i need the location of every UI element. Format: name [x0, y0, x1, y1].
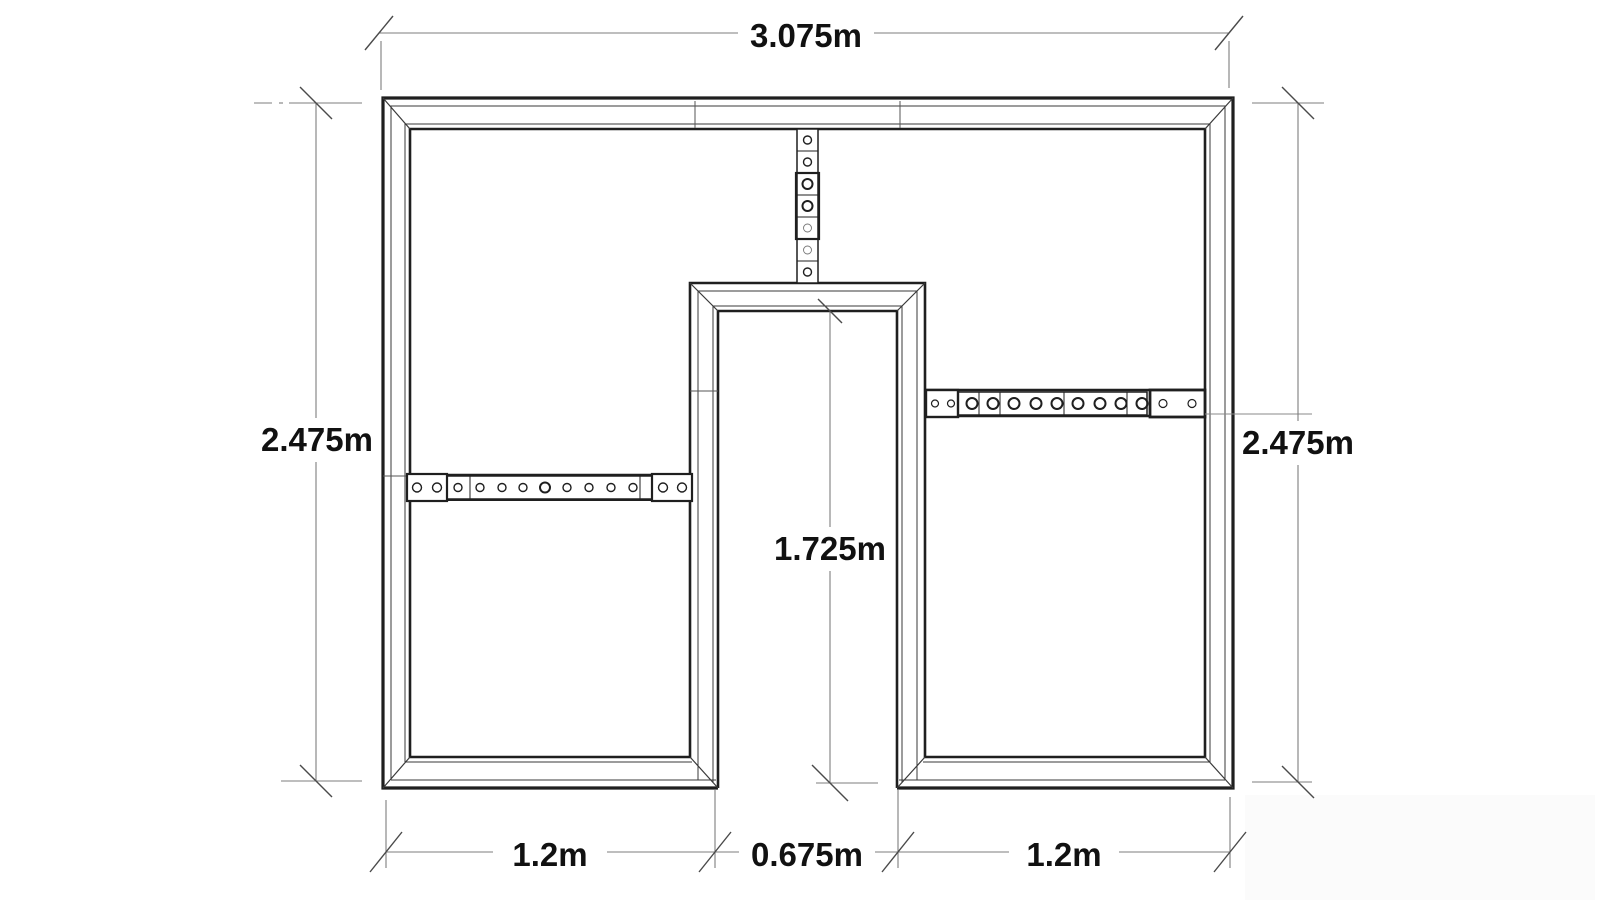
dimension-label-top-width: 3.075m [750, 17, 862, 54]
nail-plate-strap-top [796, 129, 819, 283]
nail-plate-strap-right [925, 390, 1312, 417]
background-artifact [1245, 795, 1595, 900]
nail-plate-strap-left [407, 474, 692, 501]
dimension-label-left-height: 2.475m [261, 421, 373, 458]
dimension-lines [254, 33, 1324, 868]
panel-joint-lines [383, 101, 900, 476]
dimension-label-opening-height: 1.725m [774, 530, 886, 567]
floor-plan-svg: 3.075m 2.475m 2.475m 1.725m 1.2m 0.675m … [0, 0, 1600, 900]
dimension-label-right-height: 2.475m [1242, 424, 1354, 461]
dimension-label-bottom-center: 0.675m [751, 836, 863, 873]
dimension-label-bottom-right: 1.2m [1026, 836, 1101, 873]
drawing-canvas: 3.075m 2.475m 2.475m 1.725m 1.2m 0.675m … [0, 0, 1600, 900]
dimension-label-bottom-left: 1.2m [512, 836, 587, 873]
